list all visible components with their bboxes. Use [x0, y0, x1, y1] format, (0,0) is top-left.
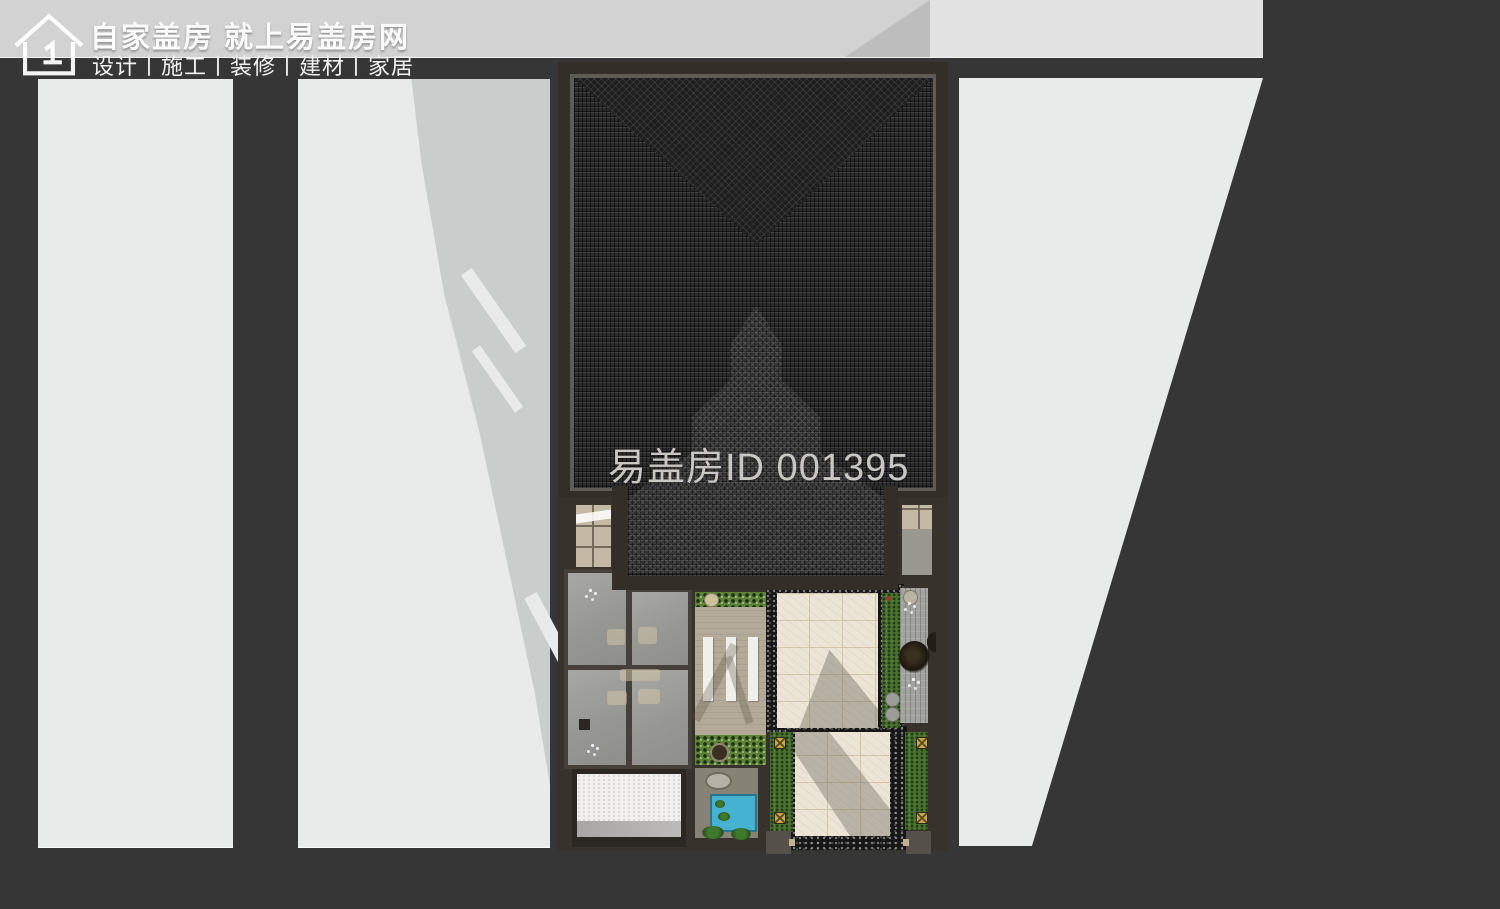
- skylight-reflection: [576, 510, 611, 524]
- armchair-3: [607, 691, 627, 705]
- skylight-right: [902, 505, 932, 529]
- wall-fountain: [927, 632, 936, 652]
- tea-table: [705, 772, 732, 790]
- neighbor-plot-right: [959, 78, 1263, 846]
- walkway-shadow-upper: [777, 593, 878, 728]
- floor-box: [579, 719, 590, 730]
- ground-light-3: [916, 737, 928, 749]
- red-flower: [886, 596, 891, 601]
- pool-plant-2: [731, 828, 751, 840]
- gate-pillar-left: [766, 831, 791, 854]
- stepping-paver-1: [885, 692, 900, 707]
- armchair-1: [607, 629, 625, 645]
- watermark-text: 易盖房ID 001395: [608, 436, 909, 491]
- gate-pillar-right: [906, 831, 931, 854]
- garage-apron: [577, 821, 681, 837]
- stone-dish: [704, 593, 719, 607]
- ground-light-2: [774, 812, 786, 824]
- pool-terrace: [695, 768, 758, 838]
- pool-plant-1: [702, 826, 724, 839]
- gate-post-left: [789, 839, 795, 846]
- street-strip-light: [930, 0, 1263, 58]
- ground-light-4: [916, 812, 928, 824]
- garage-pad: [577, 774, 681, 821]
- armchair-2: [638, 627, 657, 644]
- render-canvas: 自家盖房 就上易盖房网 设计丨施工丨装修丨建材丨家居: [0, 0, 1500, 909]
- timber-patio: [695, 607, 766, 737]
- ground-light-1: [774, 737, 786, 749]
- glass-flower-2: [591, 744, 594, 747]
- deck-flowers-1: [908, 602, 911, 605]
- building-cast-shadow: [298, 79, 550, 847]
- landscape-tree: [899, 641, 930, 673]
- brand-services: 设计丨施工丨装修丨建材丨家居: [92, 49, 414, 81]
- deck-flowers-2: [912, 678, 915, 681]
- round-planter: [710, 743, 729, 762]
- grass-paver-strip-bottom: [695, 735, 766, 765]
- skylight-right-room: [902, 505, 932, 575]
- brand-logo: [14, 7, 84, 77]
- armchair-4: [638, 689, 660, 704]
- neighbor-plot-left: [38, 79, 233, 848]
- stepping-paver-2: [885, 707, 900, 722]
- dining-table: [620, 669, 660, 681]
- marble-walkway-upper: [777, 593, 878, 728]
- gate-post-right: [903, 839, 909, 846]
- house-outline-icon: [14, 7, 84, 77]
- marble-walkway-lower: [795, 732, 890, 836]
- walkway-shadow-lower: [795, 732, 890, 836]
- glass-flower-1: [589, 589, 592, 592]
- lily-pad-2: [718, 812, 730, 821]
- pergola-slat-3: [748, 637, 758, 701]
- neighbor-plot-middle: [298, 79, 550, 848]
- glass-room-4: [632, 670, 688, 765]
- glass-room-3: [568, 670, 626, 765]
- skylight-left: [576, 505, 611, 567]
- lily-pad-1: [715, 800, 725, 808]
